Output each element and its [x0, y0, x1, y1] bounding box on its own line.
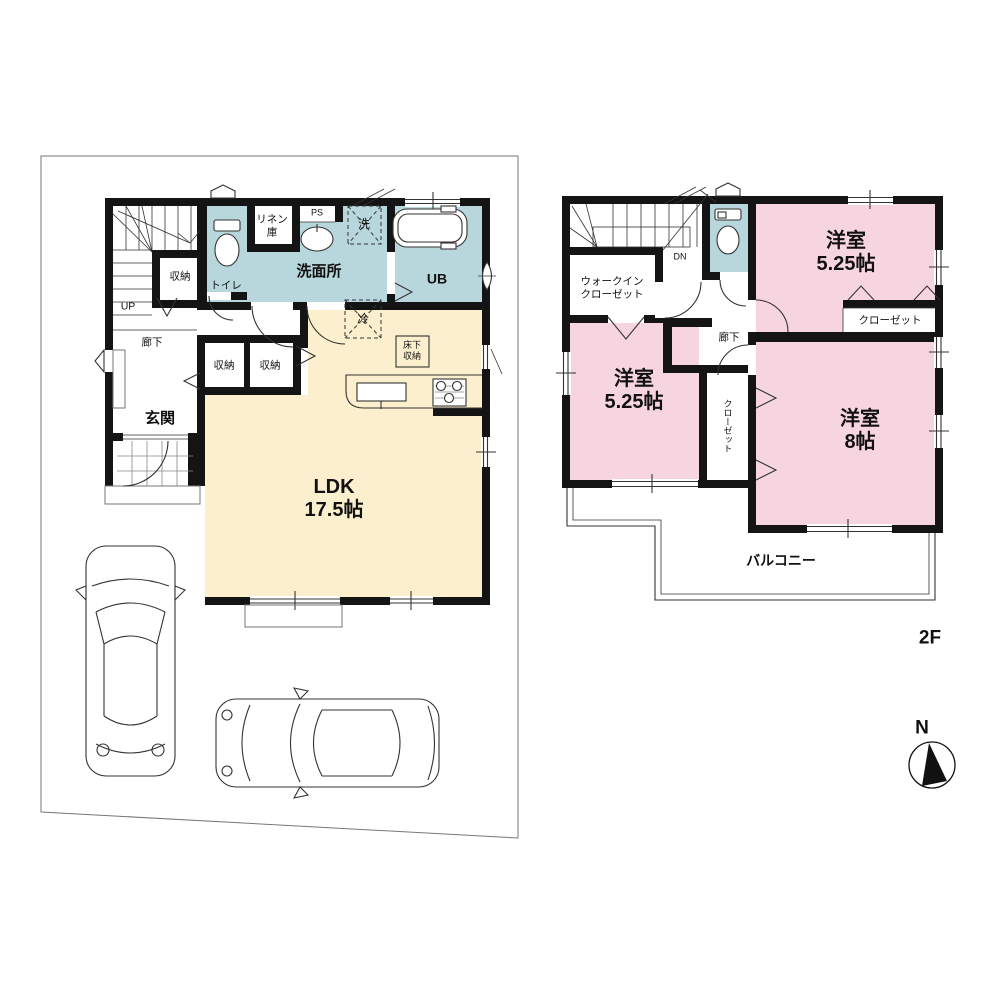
label-closet-b: クローゼット: [723, 399, 732, 453]
label-washing-machine: 洗: [358, 217, 370, 231]
entrance-porch: [105, 486, 200, 504]
label-floor2: 2F: [919, 628, 941, 651]
label-toilet-1f: トイレ: [210, 280, 242, 293]
label-closet-a: クローゼット: [859, 315, 922, 328]
left-vent-icon: [95, 350, 104, 372]
stove-fixture: [433, 379, 466, 406]
label-refrigerator: 冷: [357, 312, 369, 326]
label-ldk: LDK 17.5帖: [305, 476, 364, 522]
roof-vent-icon: [211, 185, 235, 198]
label-north: N: [915, 718, 929, 741]
label-hallway-1f: 廊下: [142, 337, 163, 350]
car-vertical: [76, 546, 185, 776]
label-underfloor-storage: 床下 収納: [403, 340, 421, 362]
shoe-cabinet: [113, 350, 125, 408]
label-pipe-space: PS: [311, 208, 323, 219]
label-entrance: 玄関: [145, 410, 175, 428]
toilet-fixture-2f: [715, 209, 741, 254]
label-stair-storage: 収納: [170, 271, 191, 284]
bathtub-fixture: [393, 206, 467, 249]
label-balcony: バルコニー: [746, 553, 816, 570]
floor-plan-page: リネン 庫 PS 洗 UB 洗面所 トイレ 収納 UP 廊下 収納 収納 玄関 …: [0, 0, 1000, 1000]
label-hall-storage-2: 収納: [260, 360, 281, 373]
label-hall-storage-1: 収納: [214, 360, 235, 373]
label-unit-bath: UB: [427, 271, 447, 288]
compass: [909, 742, 955, 788]
label-bedroom-c: 洋室 8帖: [840, 408, 880, 454]
label-hallway-2f: 廊下: [719, 332, 740, 345]
label-bedroom-a: 洋室 5.25帖: [817, 230, 876, 276]
terrace-step: [245, 605, 342, 627]
roof-vent-icon-2f: [716, 183, 740, 196]
toilet-fixture-1f: [214, 220, 240, 266]
floor1-plan: [95, 185, 502, 627]
floor-plan-drawing: [0, 0, 1000, 1000]
compass-needle: [922, 743, 947, 786]
label-stairs-down: DN: [674, 252, 687, 263]
label-washroom: 洗面所: [296, 263, 341, 281]
label-walk-in-closet: ウォークイン クローゼット: [581, 275, 644, 300]
label-stairs-up: UP: [121, 301, 136, 314]
entrance-tiles: [117, 441, 193, 486]
car-horizontal: [216, 688, 439, 798]
label-bedroom-b: 洋室 5.25帖: [605, 368, 664, 414]
label-linen-closet: リネン 庫: [256, 213, 288, 238]
